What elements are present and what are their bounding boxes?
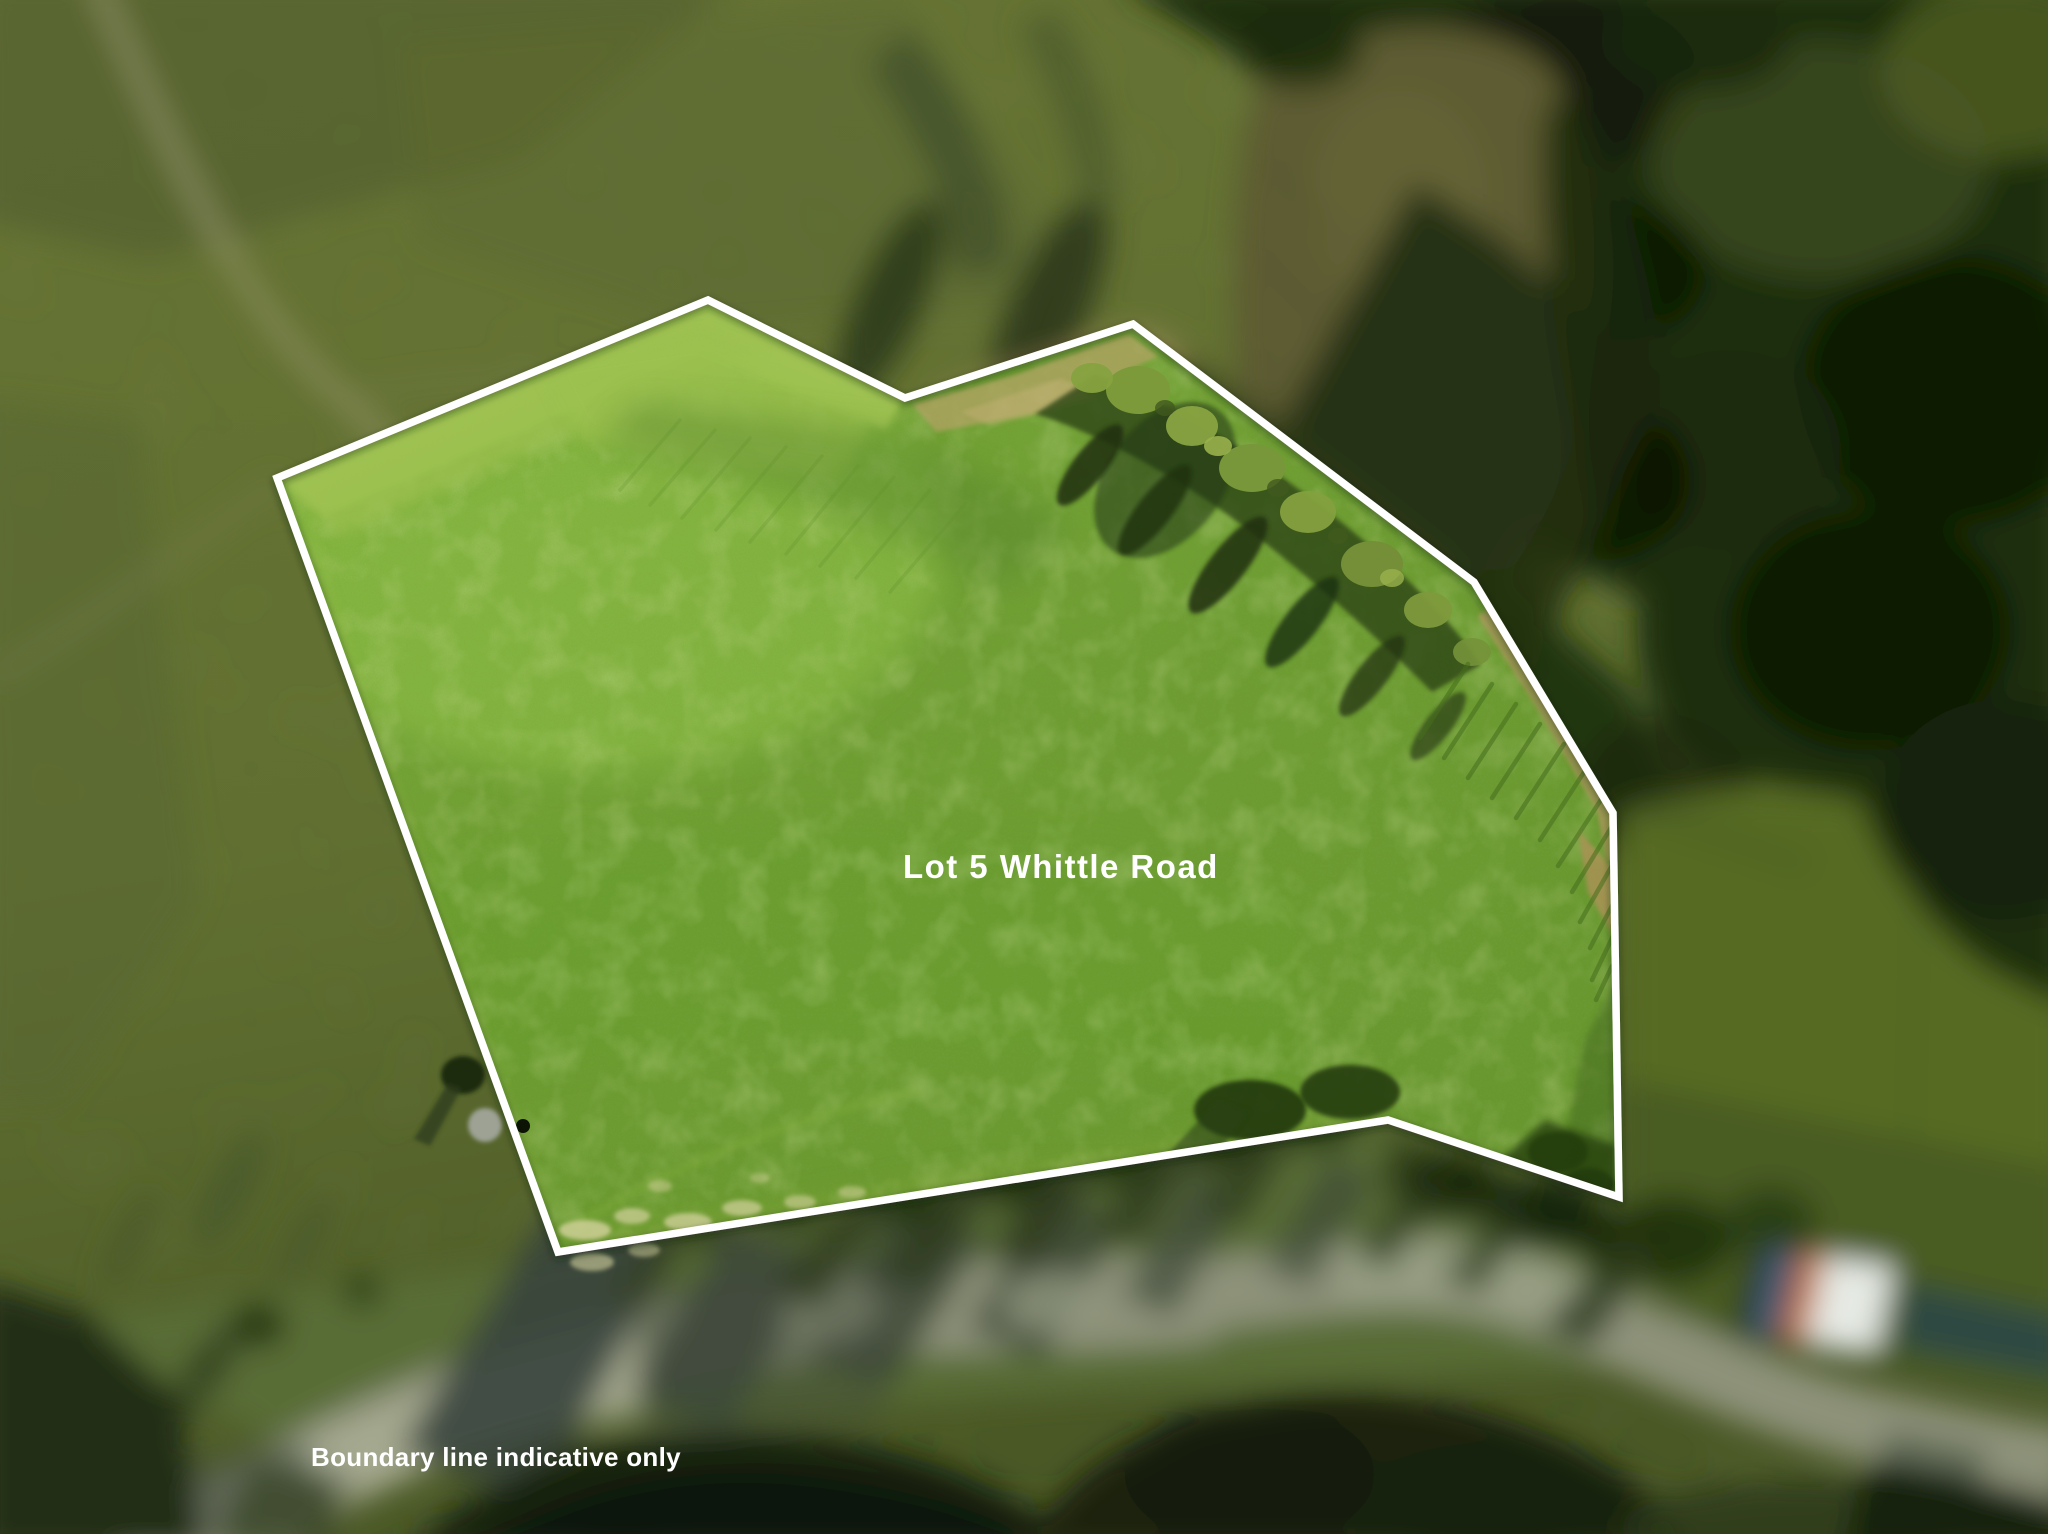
svg-text:Boundary line indicative only: Boundary line indicative only (311, 1442, 681, 1472)
svg-text:Lot 5 Whittle Road: Lot 5 Whittle Road (903, 848, 1219, 885)
